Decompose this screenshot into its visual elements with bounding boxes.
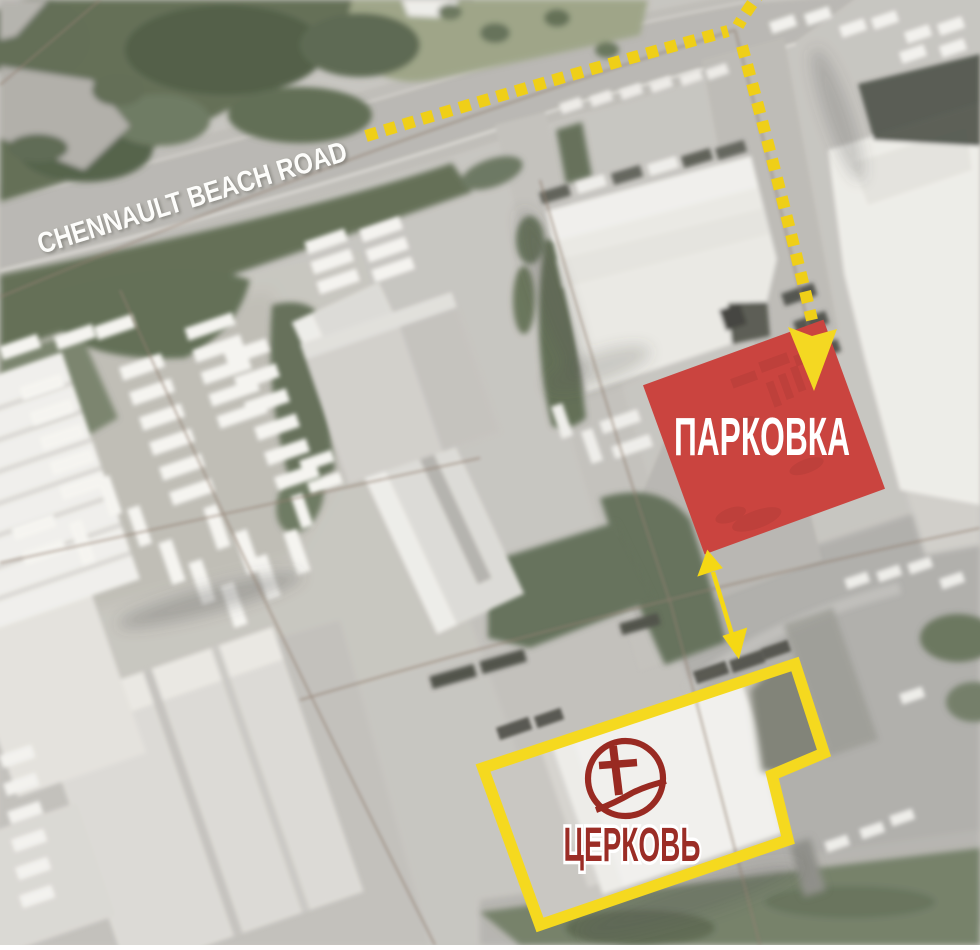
svg-text:ЦЕРКОВЬ: ЦЕРКОВЬ (564, 819, 701, 872)
svg-text:ПАРКОВКА: ПАРКОВКА (674, 407, 850, 467)
